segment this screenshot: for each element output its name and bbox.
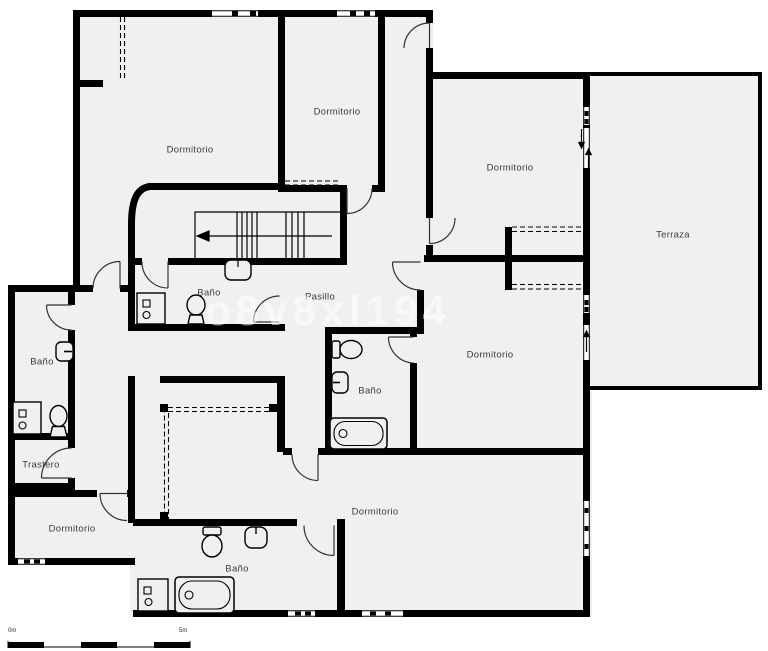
bidet-icon	[245, 527, 267, 548]
toilet-icon	[50, 406, 67, 438]
room-label-dormitorio: Dormitorio	[467, 350, 514, 361]
room-label-baño: Baño	[197, 288, 220, 299]
bathtub-icon	[330, 418, 387, 449]
scale-end-label: 5m	[179, 628, 187, 634]
sink-icon	[56, 342, 73, 361]
sink-icon	[332, 372, 348, 393]
room-label-dormitorio: Dormitorio	[167, 145, 214, 156]
understairs-niche	[225, 260, 251, 280]
room-label-baño: Baño	[358, 386, 381, 397]
vanity-icon	[137, 293, 165, 324]
room-label-trastero: Trastero	[22, 460, 59, 471]
floor-plan-svg	[0, 0, 768, 651]
room-label-baño: Baño	[30, 357, 53, 368]
scale-bar	[8, 641, 190, 648]
room-label-terraza: Terraza	[656, 230, 690, 241]
room-label-pasillo: Pasillo	[305, 292, 335, 303]
scale-start-label: 0m	[8, 628, 16, 634]
toilet-icon	[202, 527, 222, 557]
room-label-dormitorio: Dormitorio	[49, 524, 96, 535]
room-label-dormitorio: Dormitorio	[352, 507, 399, 518]
vanity-icon	[138, 579, 168, 611]
toilet-icon	[332, 341, 362, 359]
room-label-baño: Baño	[225, 564, 248, 575]
vanity-icon	[13, 402, 41, 434]
bathtub-icon	[175, 577, 234, 613]
floor-plan: DormitorioDormitorioDormitorioTerrazaPas…	[0, 0, 768, 651]
room-label-dormitorio: Dormitorio	[487, 163, 534, 174]
toilet-icon	[187, 295, 205, 324]
room-label-dormitorio: Dormitorio	[314, 107, 361, 118]
